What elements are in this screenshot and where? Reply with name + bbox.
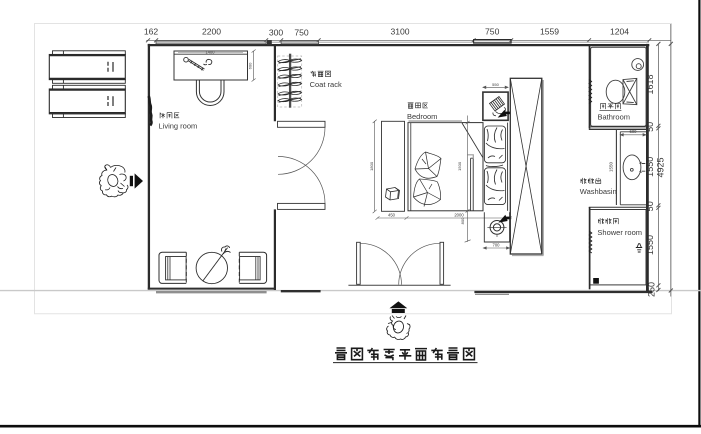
svg-text:Coat rack: Coat rack	[310, 80, 342, 89]
svg-text:2200: 2200	[202, 26, 221, 36]
svg-text:750: 750	[485, 26, 500, 36]
svg-text:1400: 1400	[206, 50, 216, 55]
svg-text:4925: 4925	[656, 157, 666, 177]
svg-text:800: 800	[460, 217, 465, 224]
svg-text:Washbasin: Washbasin	[580, 187, 617, 196]
svg-text:600: 600	[630, 129, 638, 134]
svg-text:Bedroom: Bedroom	[407, 112, 437, 121]
svg-text:2000: 2000	[454, 213, 464, 218]
svg-text:550: 550	[492, 82, 499, 87]
svg-text:1550: 1550	[609, 161, 614, 172]
svg-text:162: 162	[144, 26, 159, 36]
svg-text:1500: 1500	[457, 161, 462, 171]
svg-text:450: 450	[388, 213, 396, 218]
svg-text:750: 750	[294, 27, 309, 37]
svg-text:1559: 1559	[540, 26, 559, 36]
svg-text:Shower room: Shower room	[597, 228, 642, 237]
svg-text:3100: 3100	[390, 26, 409, 36]
svg-text:600: 600	[248, 62, 253, 69]
svg-text:Bathroom: Bathroom	[598, 112, 631, 121]
svg-text:300: 300	[269, 27, 284, 37]
svg-text:1204: 1204	[610, 26, 629, 36]
svg-text:Living room: Living room	[159, 122, 198, 131]
svg-text:1800: 1800	[369, 161, 374, 171]
svg-text:700: 700	[493, 242, 501, 247]
